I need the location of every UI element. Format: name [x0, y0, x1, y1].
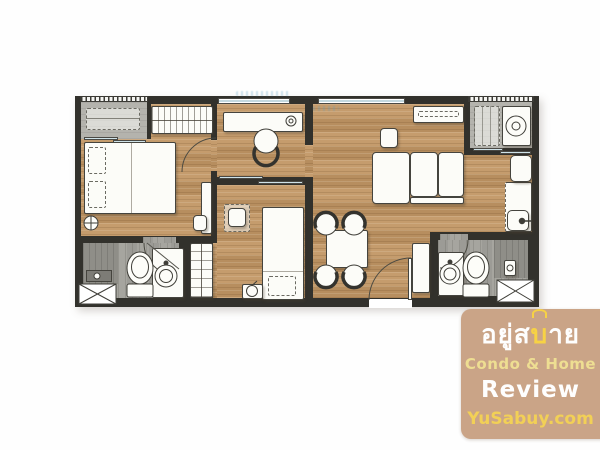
- ac-condenser-unit: [86, 108, 140, 130]
- brand-thai-prefix: อยู่ส: [481, 320, 531, 350]
- bathroom2-shower-fixture: [504, 260, 516, 276]
- hall-window: [218, 98, 290, 104]
- sofa-back: [410, 197, 464, 204]
- kitchen-sink: [507, 210, 529, 231]
- pillow: [268, 276, 296, 296]
- brand-tagline: Condo & Home: [461, 354, 600, 375]
- washing-machine: [502, 106, 531, 146]
- scan-artifact: [313, 106, 339, 111]
- master-door-opening: [211, 140, 217, 171]
- wardrobe-bedroom2: [190, 243, 213, 298]
- sofa-cushion: [410, 152, 438, 197]
- brand-thai-highlight: บ: [531, 316, 549, 354]
- bathroom1-shelf: [86, 270, 112, 282]
- entrance-opening: [369, 299, 412, 308]
- bed-single: [262, 207, 304, 300]
- balcony2-sliding-door2: [500, 151, 531, 154]
- refrigerator: [510, 155, 532, 182]
- floorplan-image: อยู่สบาย Condo & Home Review YuSabuy.com: [0, 0, 600, 450]
- brand-site: YuSabuy.com: [461, 406, 600, 432]
- pillow: [88, 181, 106, 208]
- sofa-chaise: [372, 152, 410, 204]
- ac-condenser-unit2: [474, 106, 500, 146]
- sofa-cushion: [438, 152, 464, 197]
- desk: [223, 112, 303, 132]
- scan-artifact: [236, 91, 290, 96]
- watermark-content: อยู่สบาย Condo & Home Review YuSabuy.com: [461, 309, 600, 432]
- bedroom2-sliding-door: [219, 176, 263, 179]
- bedside-cabinet: [228, 208, 246, 227]
- bedroom2-sliding-door2: [258, 181, 303, 184]
- brand-review: Review: [461, 375, 600, 406]
- bathroom2-vanity: [438, 252, 464, 296]
- bathroom1-door-opening: [143, 237, 176, 243]
- bedroom2-floor-west: [213, 243, 217, 298]
- hall-living-opening: [305, 145, 313, 177]
- living-window: [318, 98, 405, 104]
- shoe-cabinet: [412, 243, 430, 293]
- smile-mark-icon: [532, 309, 547, 318]
- balcony2-sliding-door: [473, 148, 503, 151]
- bed-fold-line: [131, 143, 132, 213]
- balcony2-railing: [468, 96, 534, 102]
- side-table: [380, 128, 398, 148]
- brand-thai: อยู่สบาย: [461, 316, 600, 354]
- pillow: [88, 147, 106, 174]
- stool-master: [193, 215, 207, 231]
- bathroom2-door-opening: [440, 234, 468, 240]
- nightstand-lamp-table: [242, 284, 263, 299]
- wardrobe-master: [151, 106, 213, 134]
- bed-fold-line: [263, 271, 303, 272]
- watermark-badge: อยู่สบาย Condo & Home Review YuSabuy.com: [461, 309, 600, 439]
- tv: [418, 111, 459, 117]
- bed-master: [84, 142, 176, 214]
- dining-table: [326, 230, 368, 268]
- bathroom1-vanity: [152, 248, 184, 298]
- brand-thai-suffix: าย: [548, 320, 580, 350]
- tv-console: [413, 106, 464, 123]
- balcony1-railing: [80, 96, 148, 102]
